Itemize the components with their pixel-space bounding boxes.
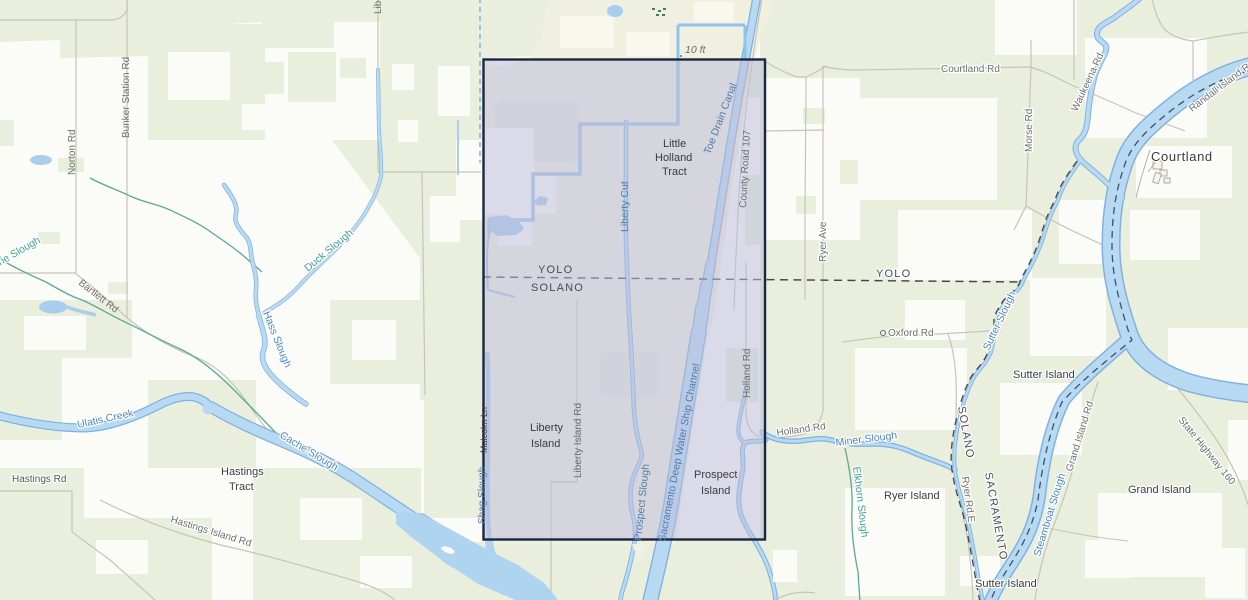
svg-text:Liberty: Liberty xyxy=(530,422,564,434)
svg-text:Sutter Island: Sutter Island xyxy=(975,578,1037,590)
svg-text:Liberty Cut: Liberty Cut xyxy=(619,181,631,232)
svg-text:Malcolm Ln: Malcolm Ln xyxy=(479,407,489,453)
svg-text:Island: Island xyxy=(531,438,560,450)
svg-text:Ryer Island: Ryer Island xyxy=(884,490,940,502)
svg-text:Ryer Ave: Ryer Ave xyxy=(818,221,829,262)
svg-text:Hastings Rd: Hastings Rd xyxy=(12,474,66,485)
svg-text:Island: Island xyxy=(701,485,730,497)
svg-text:Oxford Rd: Oxford Rd xyxy=(888,328,934,339)
svg-text:10 ft: 10 ft xyxy=(685,44,707,56)
svg-text:Shag Slough: Shag Slough xyxy=(477,467,488,524)
svg-text:Liberty Island Rd: Liberty Island Rd xyxy=(573,403,584,478)
svg-text:Tract: Tract xyxy=(662,166,687,178)
svg-text:Hastings: Hastings xyxy=(221,466,264,478)
svg-text:Bunker Station Rd: Bunker Station Rd xyxy=(121,57,132,138)
svg-text:Morse Rd: Morse Rd xyxy=(1024,109,1035,152)
svg-text:YOLO: YOLO xyxy=(538,264,573,276)
svg-text:Sutter Island: Sutter Island xyxy=(1013,369,1075,381)
svg-text:Liberty: Liberty xyxy=(373,0,384,14)
svg-text:Norton Rd: Norton Rd xyxy=(67,129,78,175)
svg-text:Holland: Holland xyxy=(655,152,692,164)
svg-text:Courtland: Courtland xyxy=(1151,149,1213,164)
svg-text:Grand Island: Grand Island xyxy=(1128,484,1191,496)
svg-text:Holland Rd: Holland Rd xyxy=(742,349,753,398)
svg-text:Tract: Tract xyxy=(229,481,254,493)
svg-text:YOLO: YOLO xyxy=(876,268,911,280)
svg-text:SOLANO: SOLANO xyxy=(531,282,584,294)
svg-text:Little: Little xyxy=(663,138,686,150)
svg-text:Prospect: Prospect xyxy=(694,469,737,481)
svg-text:Courtland Rd: Courtland Rd xyxy=(941,64,1000,75)
